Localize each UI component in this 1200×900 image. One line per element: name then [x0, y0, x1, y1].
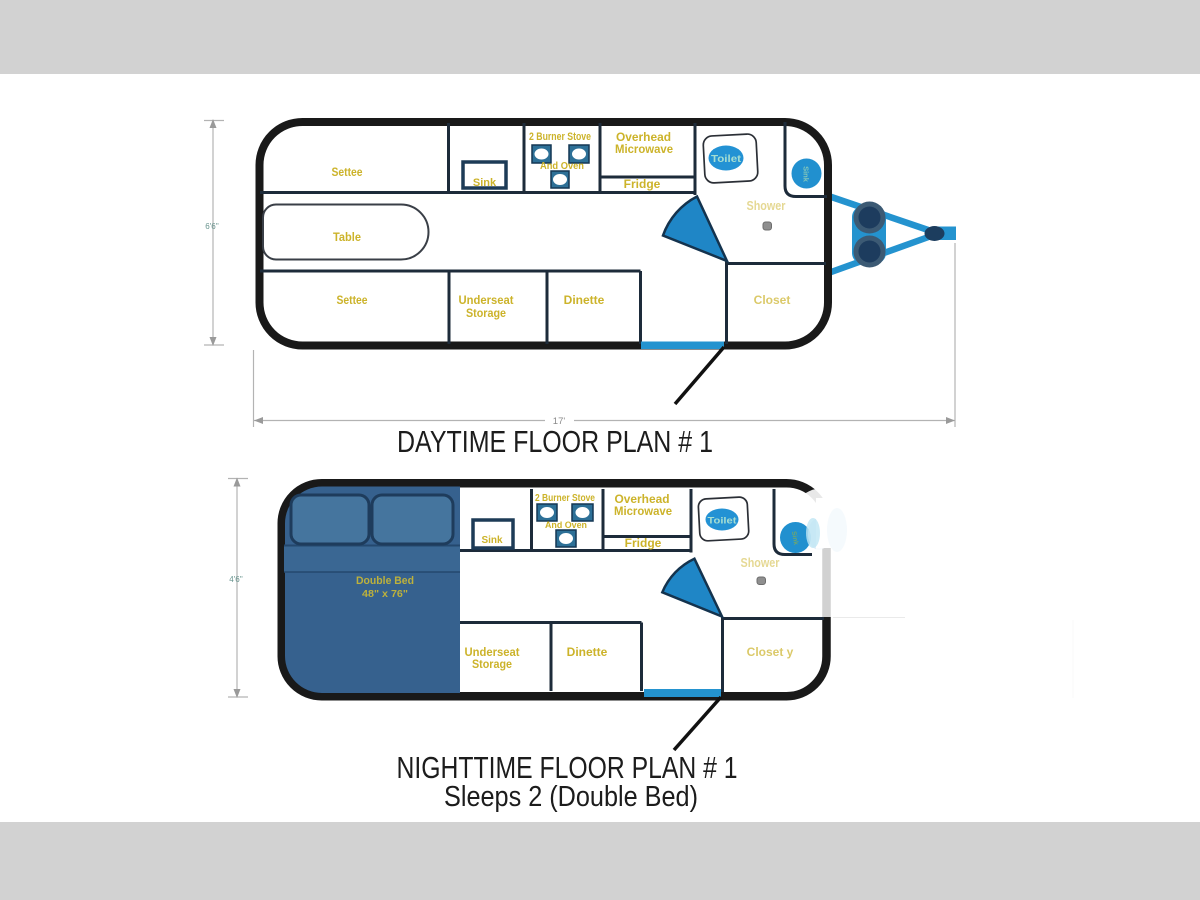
svg-text:Table: Table: [333, 230, 361, 244]
svg-text:2 Burner Stove: 2 Burner Stove: [529, 131, 591, 143]
svg-text:And Oven: And Oven: [545, 520, 587, 531]
svg-text:Toilet: Toilet: [711, 154, 742, 165]
svg-text:Fridge: Fridge: [625, 536, 662, 550]
svg-text:Settee: Settee: [332, 165, 363, 179]
svg-text:Storage: Storage: [466, 306, 506, 320]
svg-text:Shower: Shower: [741, 556, 780, 570]
svg-text:NIGHTTIME FLOOR PLAN # 1: NIGHTTIME FLOOR PLAN # 1: [397, 750, 738, 785]
svg-text:2 Burner Stove: 2 Burner Stove: [535, 492, 595, 504]
svg-text:Storage: Storage: [472, 657, 512, 671]
svg-text:Settee: Settee: [337, 293, 368, 307]
svg-text:Dinette: Dinette: [564, 293, 605, 307]
svg-text:Closet y: Closet y: [747, 645, 794, 659]
svg-text:Closet: Closet: [754, 293, 791, 307]
svg-text:Double Bed: Double Bed: [356, 575, 414, 587]
svg-text:Sink: Sink: [802, 166, 811, 183]
svg-text:Sink: Sink: [473, 177, 497, 189]
svg-text:Sink: Sink: [481, 535, 503, 546]
svg-text:DAYTIME FLOOR PLAN # 1: DAYTIME FLOOR PLAN # 1: [397, 424, 713, 459]
svg-text:48" x 76": 48" x 76": [362, 589, 408, 600]
svg-text:Underseat: Underseat: [459, 293, 514, 307]
svg-text:Dinette: Dinette: [567, 645, 608, 659]
svg-text:Sleeps 2 (Double Bed): Sleeps 2 (Double Bed): [444, 781, 698, 813]
svg-text:Fridge: Fridge: [624, 177, 661, 191]
svg-text:Toilet: Toilet: [708, 516, 738, 527]
svg-text:Microwave: Microwave: [614, 504, 672, 518]
svg-text:4'6'': 4'6'': [229, 575, 243, 584]
svg-text:And Oven: And Oven: [540, 161, 584, 172]
svg-text:6'6'': 6'6'': [205, 222, 219, 231]
svg-text:Shower: Shower: [747, 199, 786, 213]
svg-text:Microwave: Microwave: [615, 142, 673, 156]
